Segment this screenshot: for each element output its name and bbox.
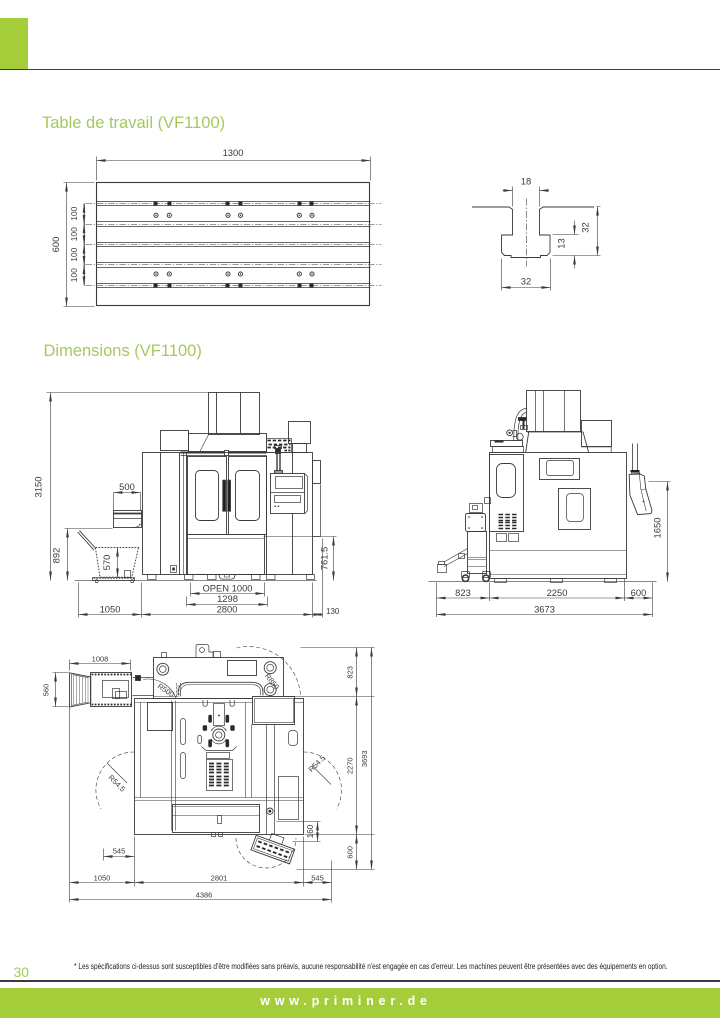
svg-text:823: 823 [345, 666, 354, 679]
svg-text:100: 100 [69, 206, 79, 220]
svg-text:R54.5: R54.5 [107, 773, 128, 794]
svg-text:600: 600 [345, 846, 354, 859]
svg-text:2800: 2800 [217, 604, 238, 615]
svg-text:500: 500 [119, 481, 135, 492]
svg-text:1300: 1300 [223, 147, 244, 158]
svg-text:570: 570 [101, 555, 112, 571]
svg-text:3673: 3673 [534, 603, 555, 614]
svg-text:OPEN 1000: OPEN 1000 [202, 583, 252, 594]
svg-text:1650: 1650 [652, 518, 663, 539]
svg-text:545: 545 [311, 874, 324, 883]
svg-text:32: 32 [521, 276, 531, 287]
svg-text:1050: 1050 [94, 874, 111, 883]
svg-text:600: 600 [50, 237, 61, 253]
svg-text:3150: 3150 [33, 477, 44, 498]
svg-text:600: 600 [631, 587, 647, 598]
svg-text:761.5: 761.5 [319, 547, 330, 570]
svg-text:823: 823 [455, 587, 471, 598]
svg-text:100: 100 [69, 247, 79, 261]
svg-text:1298: 1298 [217, 593, 238, 604]
svg-text:4386: 4386 [196, 890, 213, 899]
svg-text:100: 100 [69, 268, 79, 282]
svg-text:13: 13 [556, 238, 567, 248]
svg-text:R850: R850 [263, 672, 281, 692]
svg-text:R54.5: R54.5 [307, 753, 328, 774]
svg-text:18: 18 [521, 176, 531, 187]
svg-text:2250: 2250 [547, 587, 568, 598]
svg-text:3693: 3693 [360, 750, 369, 767]
svg-text:160: 160 [306, 824, 315, 838]
svg-text:545: 545 [113, 847, 126, 856]
svg-text:100: 100 [69, 227, 79, 241]
svg-text:32: 32 [580, 222, 591, 232]
svg-text:2801: 2801 [211, 874, 228, 883]
svg-text:560: 560 [42, 684, 51, 697]
svg-text:130: 130 [326, 607, 340, 616]
svg-text:2270: 2270 [345, 757, 354, 774]
svg-text:1008: 1008 [92, 655, 109, 664]
svg-text:1050: 1050 [100, 604, 121, 615]
svg-text:892: 892 [51, 548, 62, 564]
